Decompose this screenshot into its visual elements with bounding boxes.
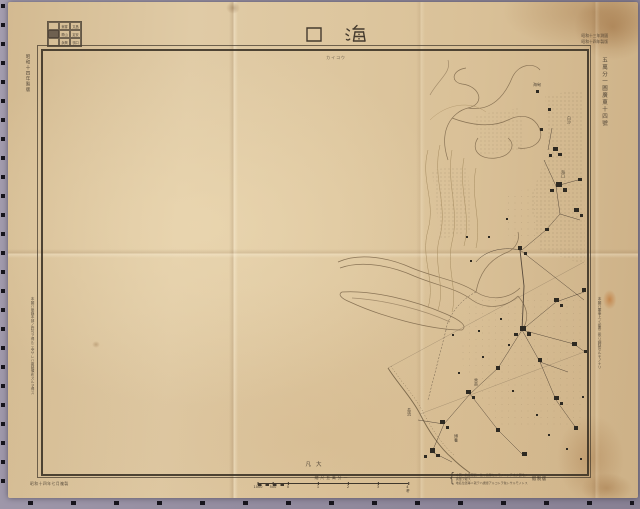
map-place-label: 海口 — [560, 170, 566, 178]
scale-tick-label: 1 — [317, 485, 319, 489]
note-lines: 本圖ハ航空寫眞ニ依リ編纂セルモノニシテ未タ實地ノ測量ヲ經ス 地名位置等ニ就テハ誤… — [456, 473, 530, 485]
scale-tick-label: 4粁 — [406, 485, 410, 494]
map-place-label: 長流 — [406, 408, 412, 416]
bottom-right-provisional-note: { 本圖ハ航空寫眞ニ依リ編纂セルモノニシテ未タ實地ノ測量ヲ經ス 地名位置等ニ就テ… — [449, 473, 547, 485]
scale-tick-label: 3 — [377, 485, 379, 489]
note-line-1: 本圖ハ航空寫眞ニ依リ編纂セルモノニシテ未タ實地ノ測量ヲ經ス — [456, 473, 530, 481]
scale-tick-label: 1000 — [254, 485, 263, 489]
map-place-label: 博養 — [453, 434, 459, 442]
map-place-label: 白沙 — [566, 116, 572, 124]
note-brace: { — [449, 472, 455, 487]
note-line-2: 地名位置等ニ就テハ誤謬アルコトヲ免レサルモノトス — [456, 481, 530, 485]
scanned-map-photo: 口 海 カイコウ 昭和十三年測圖 昭和十四年製版 東寨文昌瓊山定安永興嶺口 昭和… — [0, 0, 640, 509]
scale-tick-label: 0 — [287, 485, 289, 489]
bottom-inner-label: 凡大 — [294, 460, 338, 468]
map-place-label: 秀英 — [473, 378, 479, 386]
map-place-label: 海甸 — [533, 82, 541, 88]
scale-label: 縮尺五萬分一 — [254, 475, 410, 481]
scale-tick-label: 2 — [347, 485, 349, 489]
map-place-labels: 海甸白沙海口秀英長流博養 — [0, 0, 640, 509]
provisional-edition-label: 假製版 — [532, 476, 547, 482]
bottom-left-reprint-note: 昭和十四年七月複製 — [30, 481, 69, 487]
scale-tick-labels: 100050001234粁 — [258, 485, 408, 491]
scale-tick-label: 500 — [270, 485, 277, 489]
